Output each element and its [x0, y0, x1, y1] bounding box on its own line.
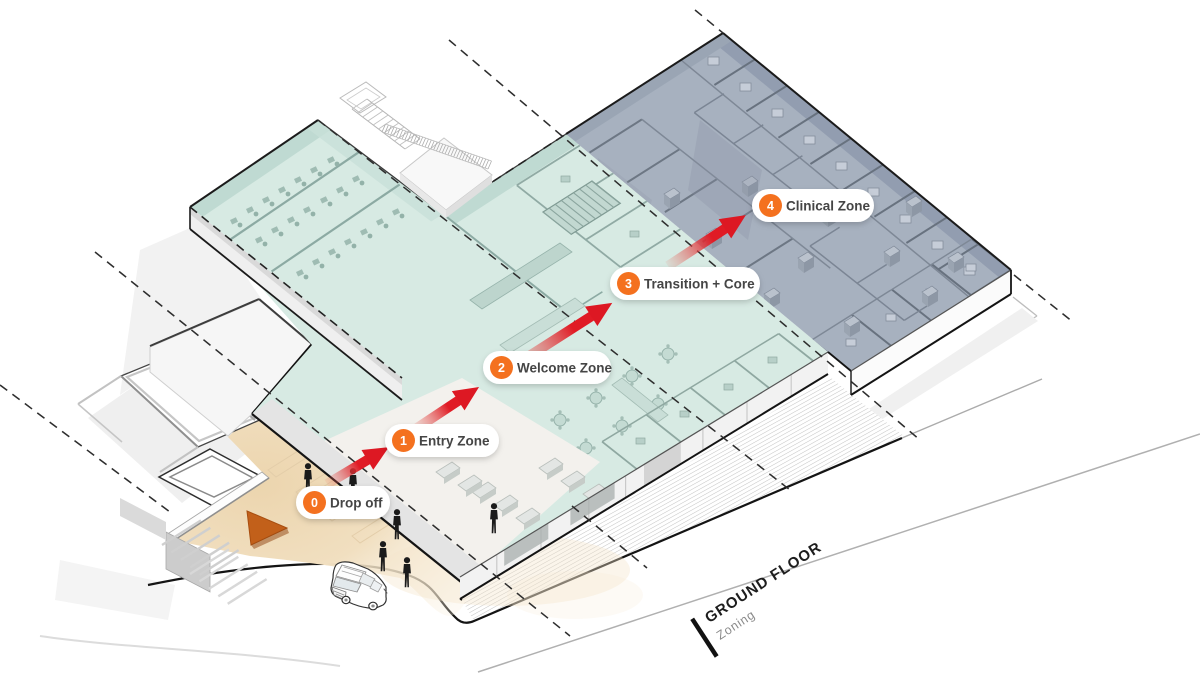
svg-text:Clinical Zone: Clinical Zone — [786, 198, 871, 213]
svg-text:Welcome Zone: Welcome Zone — [517, 360, 613, 375]
svg-text:4: 4 — [767, 199, 774, 213]
svg-text:1: 1 — [400, 434, 407, 448]
svg-text:Entry Zone: Entry Zone — [419, 433, 490, 448]
svg-text:0: 0 — [311, 496, 318, 510]
svg-text:Transition + Core: Transition + Core — [644, 276, 755, 291]
svg-text:Drop off: Drop off — [330, 495, 383, 510]
svg-text:3: 3 — [625, 277, 632, 291]
svg-text:2: 2 — [498, 361, 505, 375]
svg-text:GROUND FLOOR: GROUND FLOOR — [702, 539, 825, 627]
